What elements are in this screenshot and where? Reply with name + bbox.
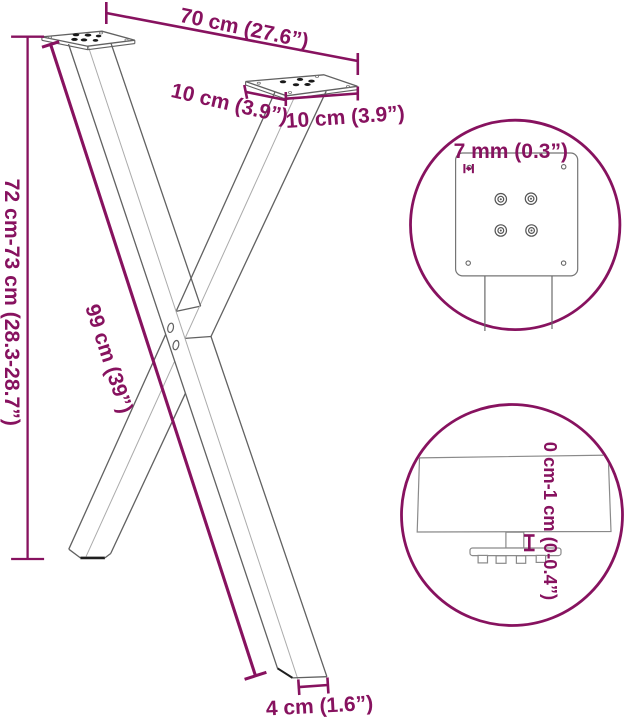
svg-text:4 cm (1.6”): 4 cm (1.6”) — [265, 692, 373, 720]
svg-text:99 cm (39”): 99 cm (39”) — [80, 301, 137, 416]
svg-text:10 cm (3.9”): 10 cm (3.9”) — [285, 102, 405, 133]
svg-text:7 mm (0.3”): 7 mm (0.3”) — [454, 140, 568, 163]
svg-text:70 cm (27.6”): 70 cm (27.6”) — [178, 4, 311, 53]
svg-text:0 cm-1 cm (0-0.4”): 0 cm-1 cm (0-0.4”) — [540, 442, 561, 600]
svg-text:72 cm-73 cm (28.3-28.7”): 72 cm-73 cm (28.3-28.7”) — [0, 179, 23, 426]
